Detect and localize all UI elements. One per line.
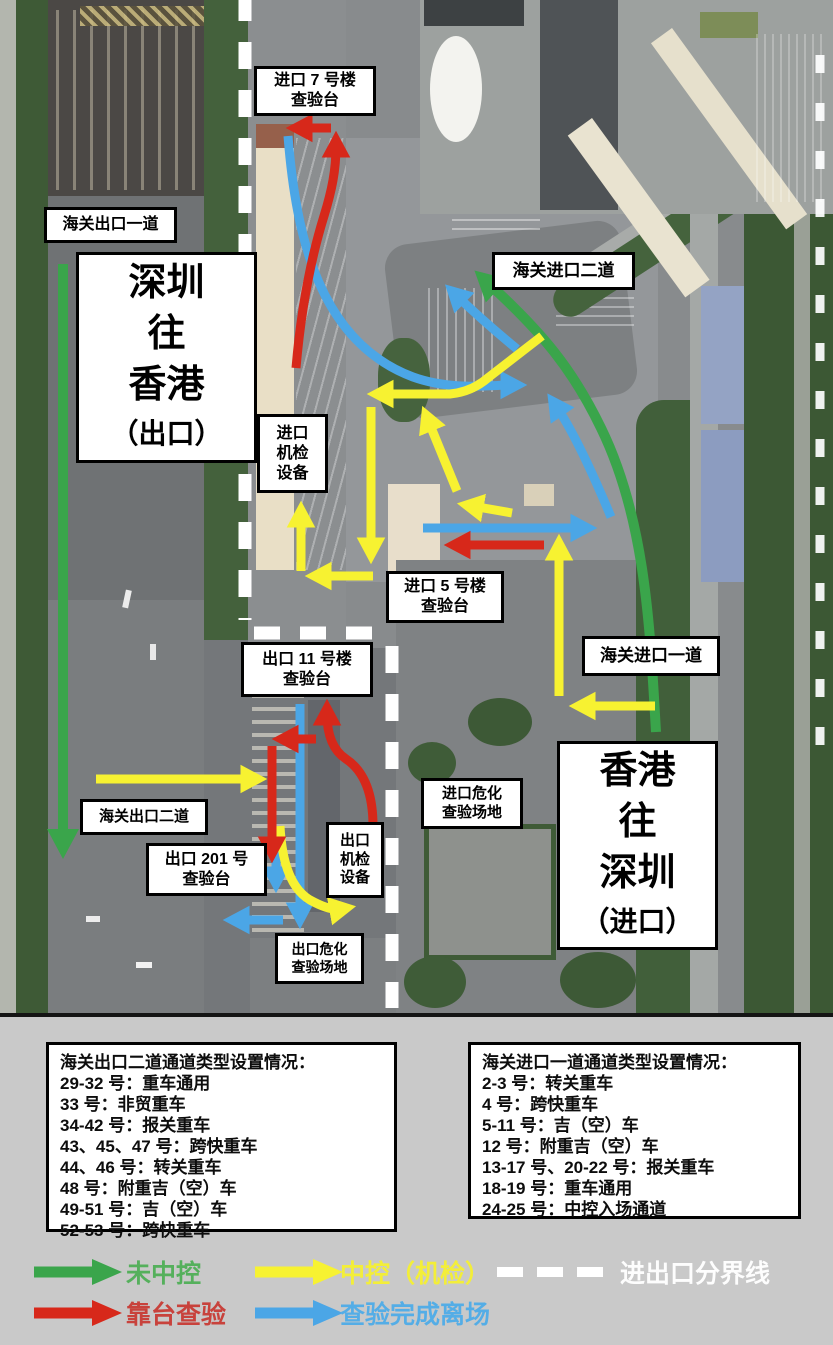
zone-line: （进口） — [581, 899, 693, 945]
label-export-bldg201: 出口 201 号 查验台 — [146, 843, 267, 896]
info-row: 24-25 号：中控入场通道 — [482, 1199, 787, 1220]
info-row: 34-42 号：报关重车 — [60, 1115, 383, 1136]
label-line: 机检 — [340, 851, 370, 870]
label-line: 海关进口一道 — [600, 645, 702, 666]
label-line: 机检 — [276, 444, 308, 464]
label-export-bldg11: 出口 11 号楼 查验台 — [241, 642, 373, 697]
label-customs-exit-lane1: 海关出口一道 — [44, 207, 177, 243]
label-line: 出口 201 号 — [165, 850, 249, 870]
legend-arrow-head — [92, 1259, 122, 1285]
label-import-scan: 进口 机检 设备 — [257, 414, 328, 493]
legend-label-boundary: 进出口分界线 — [620, 1254, 770, 1290]
legend-arrow-blue-icon — [253, 1300, 345, 1326]
zone-line: 深圳 — [128, 258, 204, 309]
label-line: 出口 — [340, 832, 370, 851]
info-row: 48 号：附重吉（空）车 — [60, 1178, 383, 1199]
info-row: 13-17 号、20-22 号：报关重车 — [482, 1157, 787, 1178]
legend-label-uncontrolled: 未中控 — [126, 1254, 201, 1290]
info-title: 海关进口一道通道类型设置情况： — [482, 1052, 787, 1073]
legend-label-controlled: 中控（机检） — [340, 1254, 490, 1290]
legend-arrow-red-icon — [32, 1300, 124, 1326]
label-import-bldg7: 进口 7 号楼 查验台 — [254, 66, 376, 116]
info-row: 52-53 号：跨快重车 — [60, 1220, 383, 1241]
label-line: 查验场地 — [442, 804, 502, 823]
label-line: 查验台 — [182, 870, 230, 890]
label-line: 查验场地 — [292, 959, 348, 977]
label-zone-import: 香港 往 深圳 （进口） — [557, 741, 718, 950]
label-line: 海关出口一道 — [62, 215, 158, 235]
page: 进口 7 号楼 查验台 海关出口一道 深圳 往 香港 （出口） 海关进口二道 进… — [0, 0, 833, 1345]
label-line: 海关进口二道 — [513, 260, 615, 281]
satellite-map: 进口 7 号楼 查验台 海关出口一道 深圳 往 香港 （出口） 海关进口二道 进… — [0, 0, 833, 1017]
info-row: 2-3 号：转关重车 — [482, 1073, 787, 1094]
red-bldg7-approach — [296, 146, 336, 368]
label-line: 查验台 — [291, 91, 339, 111]
info-row: 4 号：跨快重车 — [482, 1094, 787, 1115]
info-title: 海关出口二道通道类型设置情况： — [60, 1052, 383, 1073]
blue-bldg7-exit — [288, 136, 512, 386]
legend-arrow-head — [313, 1259, 343, 1285]
label-line: 查验台 — [283, 670, 331, 690]
zone-line: 往 — [618, 797, 656, 848]
zone-line: 香港 — [599, 746, 675, 797]
legend-arrow-head — [92, 1300, 122, 1326]
label-line: 设备 — [276, 464, 308, 484]
yellow-short-left — [472, 506, 512, 513]
zone-line: 香港 — [128, 360, 204, 411]
label-line: 进口 — [276, 424, 308, 444]
info-row: 5-11 号：吉（空）车 — [482, 1115, 787, 1136]
label-line: 查验台 — [421, 597, 469, 617]
legend-arrow-green-icon — [32, 1259, 124, 1285]
zone-line: 深圳 — [599, 848, 675, 899]
label-zone-export: 深圳 往 香港 （出口） — [76, 252, 257, 463]
legend-dashed-line-icon — [495, 1259, 607, 1285]
legend-arrow-head — [313, 1300, 343, 1326]
label-export-scan: 出口 机检 设备 — [326, 822, 384, 898]
label-line: 设备 — [340, 869, 370, 888]
label-line: 出口危化 — [292, 941, 348, 959]
label-customs-exit-lane2: 海关出口二道 — [80, 799, 208, 835]
info-row: 29-32 号：重车通用 — [60, 1073, 383, 1094]
legend-dash — [537, 1267, 563, 1277]
info-row: 12 号：附重吉（空）车 — [482, 1136, 787, 1157]
label-customs-entry-lane2: 海关进口二道 — [492, 252, 635, 290]
red-export-curve-up — [327, 714, 373, 826]
legend-dash — [497, 1267, 523, 1277]
zone-line: （出口） — [110, 411, 222, 457]
label-line: 进口危化 — [442, 785, 502, 804]
legend-arrow-yellow-icon — [253, 1259, 345, 1285]
info-row: 49-51 号：吉（空）车 — [60, 1199, 383, 1220]
info-box-entry-lanes: 海关进口一道通道类型设置情况： 2-3 号：转关重车 4 号：跨快重车 5-11… — [468, 1042, 801, 1219]
info-row: 18-19 号：重车通用 — [482, 1178, 787, 1199]
label-import-bldg5: 进口 5 号楼 查验台 — [386, 571, 504, 623]
label-customs-entry-lane1: 海关进口一道 — [582, 636, 720, 676]
label-line: 进口 7 号楼 — [274, 71, 356, 91]
info-row: 33 号：非贸重车 — [60, 1094, 383, 1115]
yellow-diagonal-up — [428, 420, 457, 491]
label-line: 进口 5 号楼 — [404, 577, 486, 597]
info-box-exit-lanes: 海关出口二道通道类型设置情况： 29-32 号：重车通用 33 号：非贸重车 3… — [46, 1042, 397, 1232]
label-export-hazmat: 出口危化 查验场地 — [275, 933, 364, 984]
label-line: 出口 11 号楼 — [262, 650, 352, 670]
label-import-hazmat: 进口危化 查验场地 — [421, 778, 523, 829]
legend-label-depart: 查验完成离场 — [340, 1295, 490, 1331]
legend-dash — [577, 1267, 603, 1277]
label-line: 海关出口二道 — [99, 808, 189, 827]
zone-line: 往 — [147, 309, 185, 360]
legend-label-dock-inspection: 靠台查验 — [126, 1295, 226, 1331]
info-row: 43、45、47 号：跨快重车 — [60, 1136, 383, 1157]
info-row: 44、46 号：转关重车 — [60, 1157, 383, 1178]
